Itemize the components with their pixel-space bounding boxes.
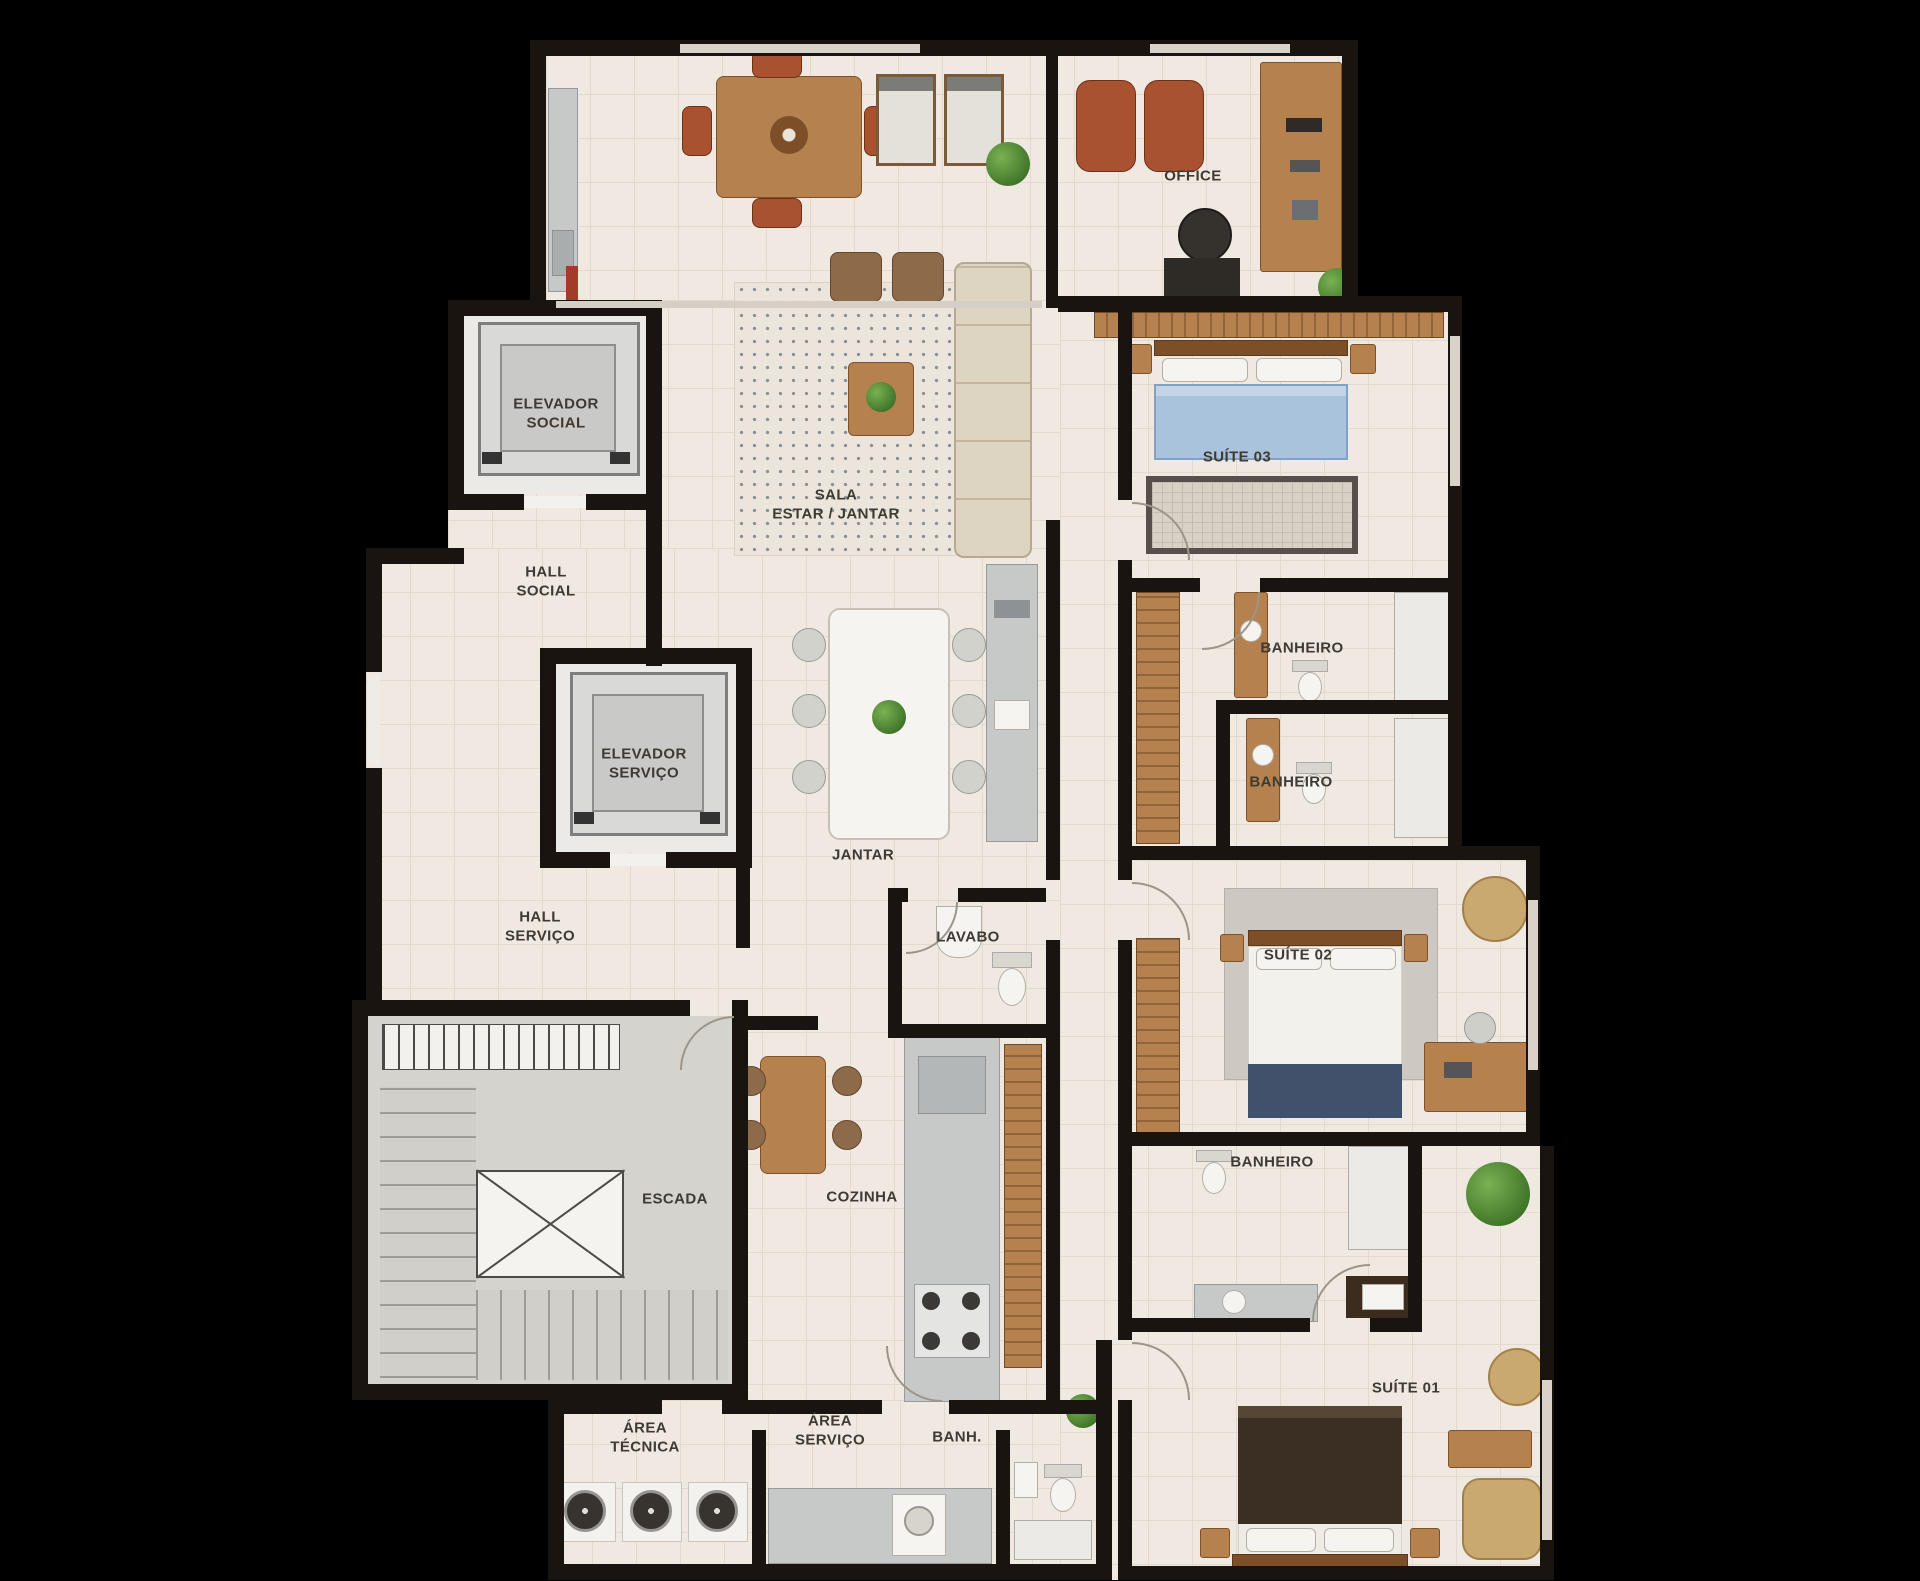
office-keyboard (1290, 160, 1320, 172)
banheiro1-shower (1394, 592, 1452, 704)
room-label-escada: ESCADA (630, 1191, 720, 1210)
hvac-unit (556, 1482, 616, 1542)
wall (1046, 940, 1060, 1414)
room-label-banheiro3: BANHEIRO (1217, 1154, 1327, 1173)
wall (1408, 1132, 1422, 1332)
wall (1132, 578, 1200, 592)
hvac-unit (622, 1482, 682, 1542)
suite01-chaise (1462, 1478, 1542, 1560)
room-label-suite03: SUÍTE 03 (1182, 449, 1292, 468)
wall (752, 1430, 766, 1580)
wall (1118, 1400, 1132, 1580)
room-label-office: OFFICE (1143, 168, 1243, 187)
banh-toilet-tank (1044, 1464, 1082, 1478)
laundry-washer-door (904, 1506, 934, 1536)
hvac-fan-icon (564, 1490, 606, 1532)
wall (548, 1400, 564, 1580)
room-label-cozinha: COZINHA (812, 1189, 912, 1208)
suite02-wardrobe (1136, 938, 1180, 1134)
wall (732, 1000, 748, 1400)
dining-counter-sink (994, 600, 1030, 618)
wall (1118, 560, 1132, 880)
room-label-sala: SALA ESTAR / JANTAR (751, 486, 921, 524)
balcony-chair-bottom (752, 198, 802, 228)
room-label-suite02: SUÍTE 02 (1243, 947, 1353, 966)
elevator-counterweight (574, 812, 594, 824)
window (1150, 44, 1290, 53)
wall (996, 1430, 1010, 1580)
suite02-nightstand-right (1404, 934, 1428, 962)
suite03-nightstand-right (1350, 344, 1376, 374)
suite02-laptop (1444, 1062, 1472, 1078)
suite03-wardrobe (1094, 312, 1444, 338)
suite01-bed-duvet (1238, 1406, 1402, 1524)
lavabo-toilet-bowl (998, 968, 1026, 1006)
room-label-lavabo: LAVABO (923, 929, 1013, 948)
wall (949, 1400, 1109, 1414)
suite01-pillow (1324, 1528, 1394, 1552)
banheiro2-vanity (1246, 718, 1280, 822)
office-chair (1178, 208, 1232, 262)
wall (1118, 296, 1132, 500)
window (1450, 336, 1460, 486)
window (680, 44, 920, 53)
lavabo-toilet-tank (992, 952, 1032, 968)
wall (540, 852, 610, 868)
room-label-suite01: SUÍTE 01 (1351, 1380, 1461, 1399)
laundry-counter (768, 1488, 992, 1564)
stove-burner (962, 1292, 980, 1310)
room-label-elevador-social: ELEVADOR SOCIAL (501, 395, 611, 433)
wall (666, 852, 752, 868)
elevator-counterweight (610, 452, 630, 464)
suite01-nightstand-right (1410, 1528, 1440, 1558)
window (1528, 900, 1538, 1070)
wall (352, 1000, 690, 1016)
window (1542, 1380, 1552, 1540)
suite02-bed-throw (1248, 1064, 1402, 1118)
wall (1132, 1318, 1310, 1332)
dining-chair (952, 628, 986, 662)
wall (888, 888, 908, 902)
wall (736, 648, 752, 868)
room-label-jantar: JANTAR (818, 847, 908, 866)
elevator-social-door (524, 496, 586, 508)
stove-burner (962, 1332, 980, 1350)
stairwell-hatched-zone (382, 1024, 620, 1070)
room-label-banh: BANH. (922, 1429, 992, 1448)
wall (352, 1384, 748, 1400)
wall (448, 300, 464, 510)
office-printer (1292, 200, 1318, 220)
dining-table-plant (872, 700, 906, 734)
office-side-table (1164, 258, 1240, 298)
suite03-pillow (1256, 358, 1342, 382)
wall (888, 888, 902, 1038)
banheiro3-shower (1348, 1146, 1410, 1250)
floor-plan: OFFICE ELEVADOR SOCIAL SALA ESTAR / JANT… (0, 0, 1920, 1581)
dining-chair (952, 760, 986, 794)
suite03-bed-headboard (1154, 340, 1348, 356)
kitchen-pantry-cabinet (1004, 1044, 1042, 1368)
room-label-banheiro2: BANHEIRO (1236, 774, 1346, 793)
dining-counter-item (994, 700, 1030, 730)
balcony-plant (986, 142, 1030, 186)
wall (646, 494, 662, 666)
suite02-desk-chair (1464, 1012, 1496, 1044)
banh-toilet-bowl (1050, 1478, 1076, 1512)
wall (530, 40, 546, 308)
living-armchair-2 (892, 252, 944, 302)
wall (1132, 1132, 1540, 1146)
stair-treads-bottom (476, 1290, 728, 1380)
dining-chair (792, 760, 826, 794)
dining-chair (952, 694, 986, 728)
room-label-banheiro1: BANHEIRO (1247, 640, 1357, 659)
banheiro2-basin (1252, 744, 1274, 766)
banheiro3-basin (1222, 1290, 1246, 1314)
room-label-area-tecnica: ÁREA TÉCNICA (595, 1419, 695, 1457)
banheiro2-shower (1394, 718, 1452, 838)
hvac-fan-icon (630, 1490, 672, 1532)
glass-partition (556, 301, 1042, 308)
balcony-chair-left (682, 106, 712, 156)
dining-chair (792, 694, 826, 728)
banheiro1-toilet-tank (1292, 660, 1328, 672)
wall (366, 548, 464, 564)
room-label-elevador-servico: ELEVADOR SERVIÇO (589, 745, 699, 783)
wall (1216, 700, 1230, 846)
wall (646, 300, 662, 510)
wall (1370, 1318, 1422, 1332)
suite02-bed-headboard (1248, 930, 1402, 946)
balcony-lounge-chair-1 (876, 74, 936, 166)
suite01-dresser (1448, 1430, 1532, 1468)
suite01-pillow (1246, 1528, 1316, 1552)
living-armchair-1 (830, 252, 882, 302)
wall (540, 648, 556, 868)
wall (448, 494, 524, 510)
banheiro3-vanity (1194, 1284, 1318, 1322)
wall (888, 1024, 1046, 1038)
suite02-desk (1424, 1042, 1530, 1112)
banh-sink (1014, 1462, 1038, 1498)
wall (548, 1400, 662, 1414)
dining-chair (792, 628, 826, 662)
wall (352, 1000, 368, 1400)
office-armchair-2 (1144, 80, 1204, 172)
banheiro1-toilet-bowl (1298, 672, 1322, 702)
suite02-nightstand-left (1220, 934, 1244, 962)
balcony-door (368, 676, 380, 764)
wall (1096, 1340, 1112, 1580)
office-monitor (1286, 118, 1322, 132)
wall (366, 548, 382, 672)
wall (1342, 40, 1358, 312)
deck-plant (1466, 1162, 1530, 1226)
room-label-hall-servico: HALL SERVIÇO (495, 908, 585, 946)
elevator-service-door (610, 854, 666, 866)
suite01-armchair (1488, 1348, 1546, 1406)
office-armchair-1 (1076, 80, 1136, 172)
hvac-fan-icon (696, 1490, 738, 1532)
suite02-armchair (1462, 876, 1528, 942)
wall (748, 1016, 818, 1030)
wall (1260, 578, 1462, 592)
corridor-closet-upper (1136, 592, 1180, 844)
kitchen-cafe-table (760, 1056, 826, 1174)
suite03-pillow (1162, 358, 1248, 382)
elevator-counterweight (482, 452, 502, 464)
wall (958, 888, 1046, 902)
elevator-counterweight (700, 812, 720, 824)
wall (1230, 700, 1462, 714)
wall (736, 868, 750, 948)
wall (366, 768, 382, 1008)
balcony-table-centerpiece (770, 116, 808, 154)
stove-burner (922, 1292, 940, 1310)
room-label-area-servico: ÁREA SERVIÇO (780, 1412, 880, 1450)
kitchen-cafe-chair (832, 1120, 862, 1150)
wall (1046, 56, 1058, 308)
kitchen-sink (918, 1056, 986, 1114)
kitchen-cafe-chair (832, 1066, 862, 1096)
wall (1118, 940, 1132, 1340)
wall (1132, 1566, 1554, 1580)
wall (548, 1564, 1108, 1580)
stair-treads-left (380, 1086, 476, 1378)
living-table-plant (866, 382, 896, 412)
wall (1046, 520, 1060, 880)
wall (1132, 846, 1540, 860)
suite01-nightstand-left (1200, 1528, 1230, 1558)
hvac-unit (688, 1482, 748, 1542)
banh-shower (1014, 1520, 1092, 1560)
room-label-hall-social: HALL SOCIAL (501, 563, 591, 601)
banheiro2-toilet-tank (1296, 762, 1332, 774)
